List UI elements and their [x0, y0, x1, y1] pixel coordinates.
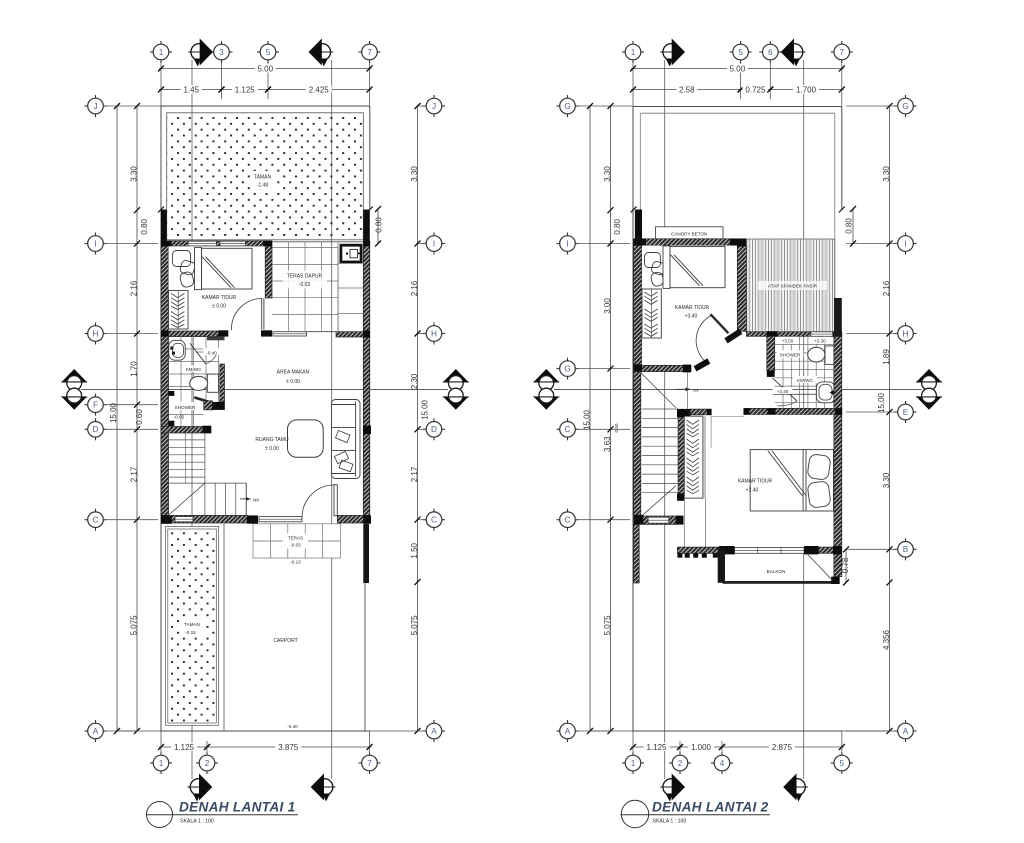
svg-text:3.00: 3.00 — [603, 298, 612, 314]
svg-text:2: 2 — [205, 759, 210, 768]
svg-text:H: H — [903, 329, 909, 338]
svg-text:+3.40: +3.40 — [685, 314, 698, 320]
svg-text:-1.48: -1.48 — [257, 183, 269, 189]
svg-text:G: G — [564, 102, 570, 111]
svg-text:± 0.00: ± 0.00 — [286, 379, 300, 385]
svg-text:1.70: 1.70 — [129, 361, 138, 377]
svg-text:E: E — [903, 408, 909, 417]
svg-text:1.700: 1.700 — [796, 85, 817, 94]
svg-text:H: H — [93, 329, 99, 338]
svg-text:-0.15: -0.15 — [185, 630, 196, 635]
svg-text:I: I — [433, 239, 435, 248]
svg-text:3.30: 3.30 — [603, 166, 612, 182]
svg-text:-0.40: -0.40 — [287, 724, 298, 729]
svg-text:1.000: 1.000 — [691, 743, 712, 752]
svg-text:TAMAN: TAMAN — [254, 175, 272, 181]
svg-text:C: C — [93, 516, 99, 525]
svg-text:3.875: 3.875 — [278, 743, 299, 752]
svg-text:-0.03: -0.03 — [299, 282, 311, 288]
svg-text:TERAS: TERAS — [288, 536, 303, 541]
svg-text:SKALA 1 : 100: SKALA 1 : 100 — [180, 818, 214, 824]
svg-text:0.80: 0.80 — [613, 218, 622, 234]
svg-text:SKALA 1 : 100: SKALA 1 : 100 — [653, 818, 687, 824]
svg-text:A: A — [431, 727, 437, 736]
svg-text:15.00: 15.00 — [877, 392, 886, 413]
svg-text:0.725: 0.725 — [745, 85, 766, 94]
svg-text:1.125: 1.125 — [174, 743, 195, 752]
svg-text:-0.13: -0.13 — [290, 560, 301, 565]
svg-text:3.30: 3.30 — [882, 166, 891, 182]
svg-text:5.075: 5.075 — [603, 615, 612, 636]
svg-text:3: 3 — [219, 48, 224, 57]
svg-text:CARPORT: CARPORT — [273, 638, 297, 644]
svg-text:TR: TR — [693, 388, 700, 393]
svg-text:J: J — [93, 102, 97, 111]
svg-text:2.17: 2.17 — [129, 466, 138, 482]
svg-text:KAMAR TIDUR: KAMAR TIDUR — [202, 295, 237, 301]
svg-text:A: A — [93, 727, 99, 736]
svg-text:C: C — [565, 516, 571, 525]
svg-text:3.30: 3.30 — [410, 166, 419, 182]
svg-text:15.00: 15.00 — [109, 402, 118, 423]
svg-text:7: 7 — [840, 48, 845, 57]
svg-text:TAMAN: TAMAN — [184, 622, 200, 627]
svg-text:1.45: 1.45 — [183, 85, 199, 94]
svg-text:G: G — [564, 365, 570, 374]
svg-text:7: 7 — [367, 48, 372, 57]
svg-text:2.30: 2.30 — [410, 373, 419, 389]
svg-text:NK: NK — [253, 497, 260, 502]
svg-text:5.075: 5.075 — [129, 615, 138, 636]
svg-text:RUANG TAMU: RUANG TAMU — [255, 437, 289, 443]
svg-text:0.80: 0.80 — [374, 217, 383, 233]
svg-text:5: 5 — [840, 759, 845, 768]
svg-text:B: B — [903, 545, 909, 554]
svg-text:15.00: 15.00 — [582, 409, 591, 430]
svg-text:SHOWER: SHOWER — [780, 353, 801, 358]
svg-text:0.80: 0.80 — [844, 218, 853, 234]
svg-text:2.58: 2.58 — [679, 85, 695, 94]
svg-text:1.50: 1.50 — [410, 542, 419, 558]
svg-text:KM/WC: KM/WC — [797, 378, 814, 383]
svg-text:F: F — [93, 401, 98, 410]
svg-text:1: 1 — [631, 48, 636, 57]
svg-text:+2.40: +2.40 — [746, 488, 759, 494]
svg-text:5: 5 — [266, 48, 271, 57]
svg-text:KM/WC: KM/WC — [186, 367, 203, 372]
svg-text:+3.50: +3.50 — [782, 338, 794, 343]
svg-text:2: 2 — [678, 759, 683, 768]
svg-text:4: 4 — [720, 759, 725, 768]
svg-text:+3.30: +3.30 — [814, 338, 826, 343]
svg-text:D: D — [431, 425, 437, 434]
svg-text:± 0.00: ± 0.00 — [212, 304, 226, 310]
svg-text:0.80: 0.80 — [140, 218, 149, 234]
svg-text:1: 1 — [159, 48, 164, 57]
svg-text:0.50: 0.50 — [614, 423, 619, 432]
svg-text:TERAS DAPUR: TERAS DAPUR — [287, 274, 323, 280]
svg-text:2.875: 2.875 — [772, 743, 793, 752]
svg-text:CANOPY BETON: CANOPY BETON — [671, 231, 707, 236]
svg-text:-0.05: -0.05 — [174, 415, 185, 420]
svg-text:2.16: 2.16 — [129, 280, 138, 296]
svg-text:AREA MAKAN: AREA MAKAN — [277, 370, 310, 376]
svg-text:I: I — [904, 239, 906, 248]
svg-text:7: 7 — [367, 759, 372, 768]
svg-text:-0.40: -0.40 — [206, 350, 217, 355]
svg-text:ATAP SPANDEK PASIR: ATAP SPANDEK PASIR — [768, 284, 818, 289]
svg-text:5.00: 5.00 — [257, 64, 273, 73]
svg-text:2.16: 2.16 — [410, 280, 419, 296]
svg-text:1.89: 1.89 — [882, 349, 891, 365]
svg-text:± 0.00: ± 0.00 — [265, 446, 279, 452]
svg-text:H: H — [431, 329, 437, 338]
svg-text:3.30: 3.30 — [882, 472, 891, 488]
svg-text:I: I — [94, 239, 96, 248]
svg-text:-0.03: -0.03 — [290, 543, 301, 548]
svg-text:2.16: 2.16 — [882, 280, 891, 296]
svg-text:C: C — [431, 516, 437, 525]
svg-text:SHOWER: SHOWER — [175, 405, 196, 410]
svg-text:1.125: 1.125 — [646, 743, 667, 752]
svg-text:C: C — [565, 425, 571, 434]
svg-text:15.00: 15.00 — [421, 399, 430, 420]
svg-text:1: 1 — [631, 759, 636, 768]
svg-text:1.125: 1.125 — [235, 85, 256, 94]
svg-text:D: D — [93, 425, 99, 434]
svg-text:A: A — [565, 727, 571, 736]
svg-text:2.425: 2.425 — [309, 85, 330, 94]
svg-text:6: 6 — [768, 48, 773, 57]
svg-text:KAMAR TIDUR: KAMAR TIDUR — [738, 479, 773, 485]
svg-text:2.17: 2.17 — [410, 466, 419, 482]
svg-text:3.63: 3.63 — [603, 436, 612, 452]
svg-text:1: 1 — [159, 759, 164, 768]
svg-text:DENAH LANTAI 2: DENAH LANTAI 2 — [652, 800, 769, 815]
svg-text:0.60: 0.60 — [135, 409, 144, 425]
svg-text:5.075: 5.075 — [410, 615, 419, 636]
svg-text:G: G — [902, 102, 908, 111]
svg-text:KAMAR TIDUR: KAMAR TIDUR — [675, 305, 710, 311]
svg-text:DENAH LANTAI 1: DENAH LANTAI 1 — [179, 800, 295, 815]
svg-text:+3.40: +3.40 — [777, 389, 789, 394]
svg-text:BALKON: BALKON — [767, 569, 786, 574]
svg-text:4.356: 4.356 — [882, 629, 891, 650]
svg-text:I: I — [566, 239, 568, 248]
svg-text:5.00: 5.00 — [730, 64, 746, 73]
svg-text:A: A — [903, 727, 909, 736]
svg-text:J: J — [432, 102, 436, 111]
svg-text:5: 5 — [738, 48, 743, 57]
svg-text:3.30: 3.30 — [129, 166, 138, 182]
